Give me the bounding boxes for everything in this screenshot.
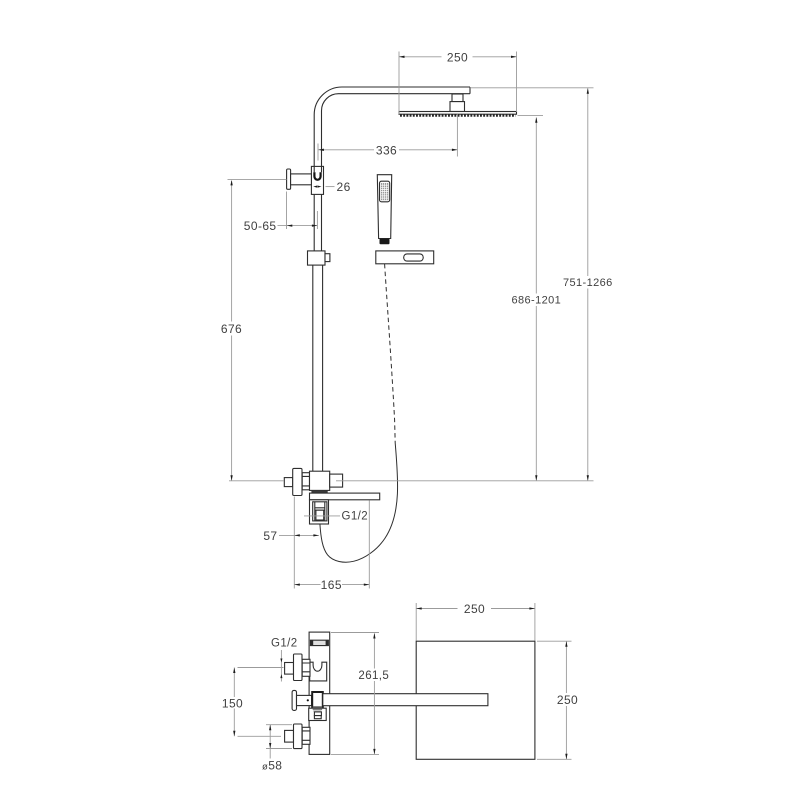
svg-text:ø58: ø58 (262, 758, 282, 772)
svg-text:250: 250 (447, 50, 468, 64)
svg-text:686-1201: 686-1201 (511, 294, 561, 306)
svg-text:50-65: 50-65 (244, 219, 277, 233)
svg-text:250: 250 (557, 693, 578, 707)
svg-text:G1/2: G1/2 (342, 510, 369, 522)
svg-text:150: 150 (222, 696, 243, 710)
svg-text:336: 336 (376, 143, 397, 157)
svg-text:G1/2: G1/2 (271, 638, 298, 650)
svg-text:26: 26 (337, 180, 351, 194)
svg-text:751-1266: 751-1266 (563, 277, 613, 289)
svg-text:676: 676 (221, 322, 242, 336)
svg-text:57: 57 (263, 529, 277, 543)
svg-text:250: 250 (464, 602, 485, 616)
svg-text:261,5: 261,5 (358, 670, 389, 682)
svg-text:165: 165 (321, 578, 342, 592)
